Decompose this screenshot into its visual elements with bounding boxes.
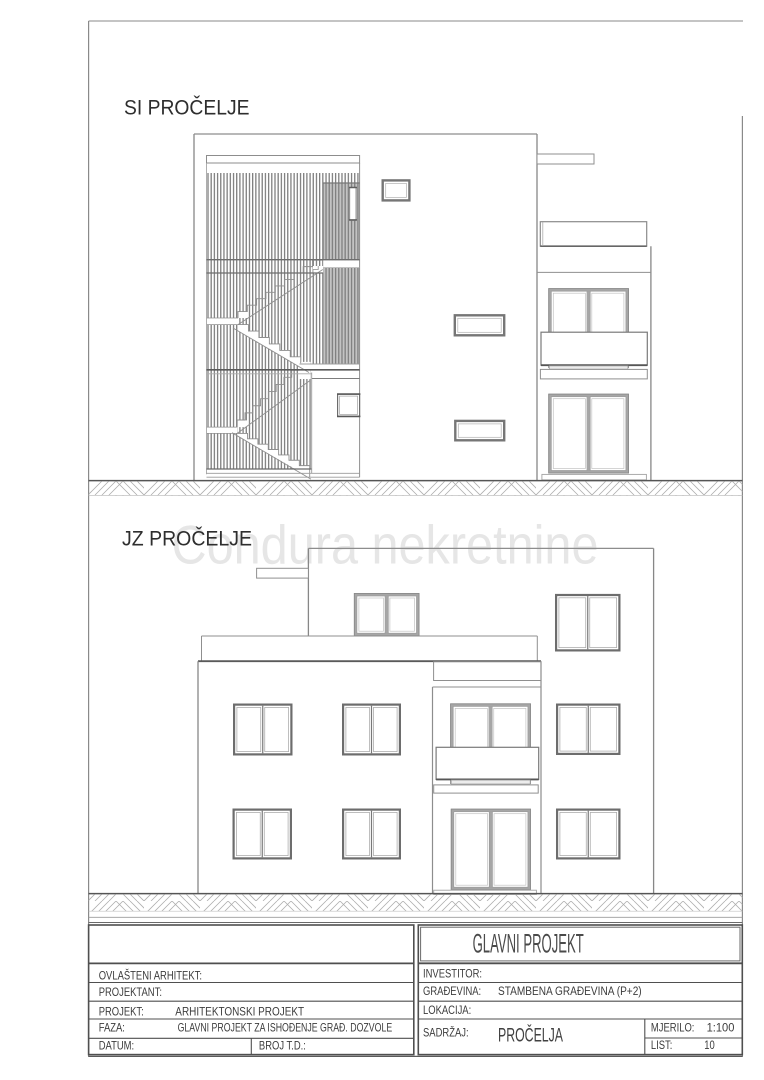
svg-text:GLAVNI PROJEKT ZA ISHOĐENJE GR: GLAVNI PROJEKT ZA ISHOĐENJE GRAĐ. DOZVOL… (178, 1021, 393, 1034)
svg-text:FAZA:: FAZA: (99, 1021, 125, 1034)
svg-text:GRAĐEVINA:: GRAĐEVINA: (423, 985, 481, 998)
svg-text:SI PROČELJE: SI PROČELJE (124, 96, 250, 119)
svg-text:10: 10 (704, 1039, 714, 1052)
svg-text:LIST:: LIST: (651, 1039, 673, 1052)
svg-text:OVLAŠTENI ARHITEKT:: OVLAŠTENI ARHITEKT: (99, 968, 202, 982)
svg-text:PROČELJA: PROČELJA (498, 1024, 563, 1046)
svg-text:STAMBENA GRAĐEVINA (P+2): STAMBENA GRAĐEVINA (P+2) (498, 985, 642, 998)
svg-text:ARHITEKTONSKI PROJEKT: ARHITEKTONSKI PROJEKT (175, 1005, 304, 1018)
svg-text:GLAVNI PROJEKT: GLAVNI PROJEKT (473, 928, 584, 958)
svg-text:LOKACIJA:: LOKACIJA: (423, 1004, 471, 1017)
svg-text:BROJ T.D.:: BROJ T.D.: (259, 1039, 306, 1052)
svg-text:PROJEKTANT:: PROJEKTANT: (99, 986, 162, 999)
svg-text:INVESTITOR:: INVESTITOR: (423, 967, 482, 980)
svg-text:1:100: 1:100 (707, 1021, 735, 1034)
svg-text:JZ PROČELJE: JZ PROČELJE (122, 528, 252, 551)
svg-text:PROJEKT:: PROJEKT: (99, 1005, 144, 1018)
svg-text:MJERILO:: MJERILO: (651, 1021, 695, 1034)
svg-text:SADRŽAJ:: SADRŽAJ: (423, 1025, 469, 1039)
svg-text:DATUM:: DATUM: (99, 1039, 134, 1052)
